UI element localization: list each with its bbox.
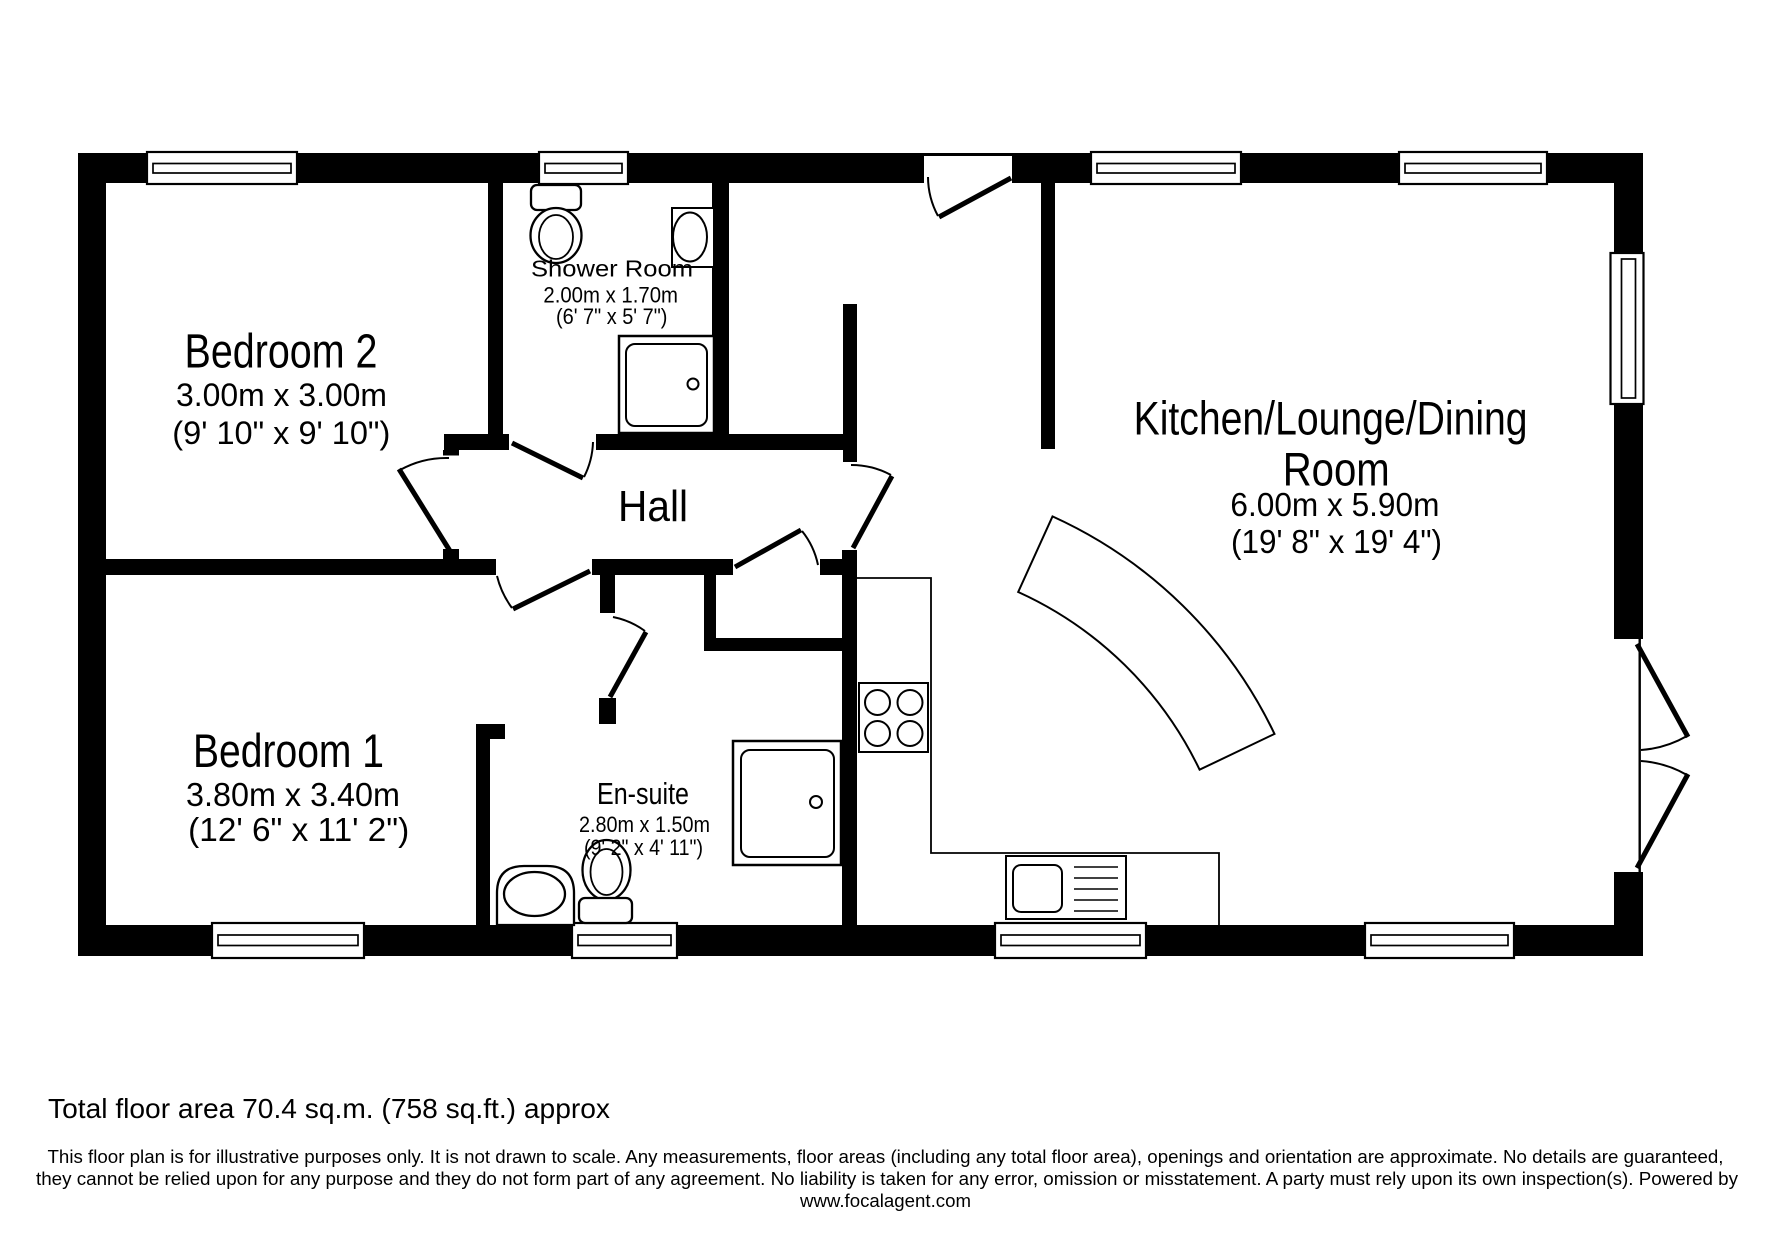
- svg-text:(12' 6" x 11' 2"): (12' 6" x 11' 2"): [188, 811, 409, 848]
- svg-text:Bedroom 1: Bedroom 1: [193, 725, 384, 778]
- svg-text:(9' 10" x 9' 10"): (9' 10" x 9' 10"): [172, 415, 390, 451]
- svg-text:Kitchen/Lounge/Dining: Kitchen/Lounge/Dining: [1134, 393, 1528, 446]
- svg-text:Bedroom 2: Bedroom 2: [185, 326, 378, 379]
- svg-text:En-suite: En-suite: [597, 776, 689, 811]
- svg-text:Hall: Hall: [618, 482, 688, 531]
- svg-text:(6' 7" x 5' 7"): (6' 7" x 5' 7"): [556, 304, 667, 329]
- svg-text:(9' 2" x 4' 11"): (9' 2" x 4' 11"): [584, 835, 703, 860]
- svg-text:they cannot be relied upon for: they cannot be relied upon for any purpo…: [36, 1168, 1739, 1189]
- svg-text:Shower Room: Shower Room: [531, 255, 693, 281]
- svg-text:(19' 8" x 19' 4"): (19' 8" x 19' 4"): [1231, 524, 1442, 561]
- svg-text:3.00m x 3.00m: 3.00m x 3.00m: [176, 377, 387, 413]
- svg-text:Total floor area 70.4 sq.m. (7: Total floor area 70.4 sq.m. (758 sq.ft.)…: [48, 1093, 610, 1124]
- svg-text:This floor plan is for illustr: This floor plan is for illustrative purp…: [48, 1146, 1724, 1167]
- svg-text:3.80m x 3.40m: 3.80m x 3.40m: [186, 776, 400, 813]
- svg-text:2.80m x 1.50m: 2.80m x 1.50m: [579, 812, 710, 837]
- svg-text:www.focalagent.com: www.focalagent.com: [799, 1190, 971, 1211]
- svg-text:6.00m x 5.90m: 6.00m x 5.90m: [1230, 487, 1439, 524]
